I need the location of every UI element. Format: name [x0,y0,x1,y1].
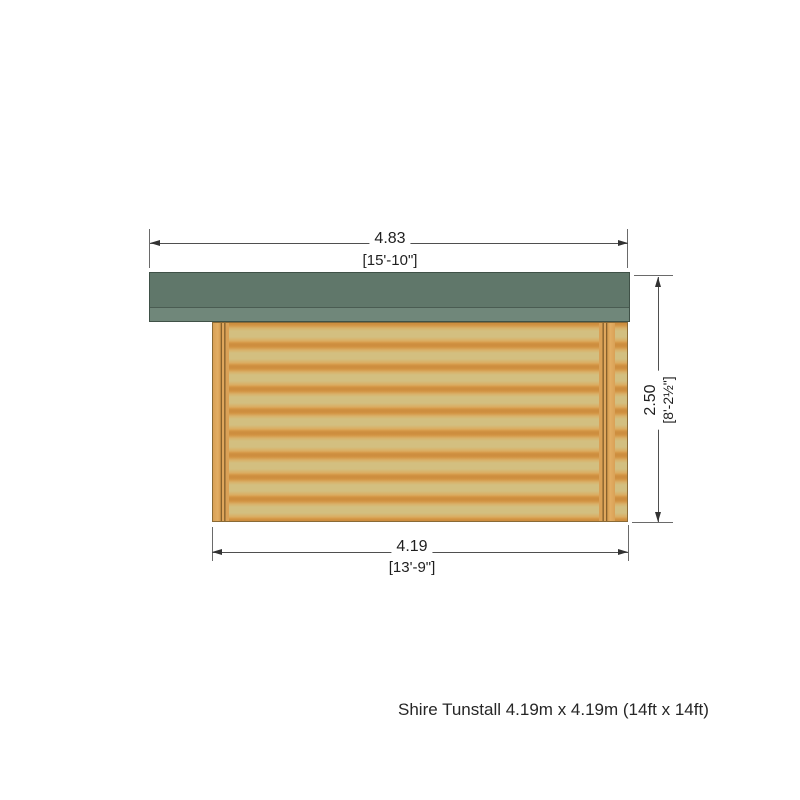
right-dimension-label: 2.50 [8'-2½"] [640,370,678,429]
bottom-dimension-metric: 4.19 [391,537,432,557]
dim-arrow-right [618,549,628,555]
dim-arrow-down [655,512,661,522]
corner-batten-right [599,323,615,521]
elevation-drawing: 4.83 [15'-10"] 2.50 [8'-2½"] 4.19 [13'-9… [0,0,800,800]
extension-line-left [212,527,213,561]
product-caption: Shire Tunstall 4.19m x 4.19m (14ft x 14f… [398,700,709,720]
top-dimension-imperial: [15'-10"] [358,251,423,271]
roof [149,272,630,322]
dim-arrow-right [618,240,628,246]
extension-line-right [627,229,628,268]
right-dimension-imperial: [8'-2½"] [660,376,676,423]
right-dimension-metric: 2.50 [642,376,660,423]
wall [212,322,628,522]
extension-line-top [634,275,673,276]
extension-line-right [628,525,629,561]
roof-fascia [150,307,629,321]
corner-batten-left [213,323,229,521]
dim-arrow-left [150,240,160,246]
extension-line-left [149,229,150,268]
top-dimension-metric: 4.83 [369,229,410,249]
dim-arrow-left [212,549,222,555]
bottom-dimension-imperial: [13'-9"] [384,558,441,578]
dim-arrow-up [655,277,661,287]
extension-line-bottom [632,522,673,523]
